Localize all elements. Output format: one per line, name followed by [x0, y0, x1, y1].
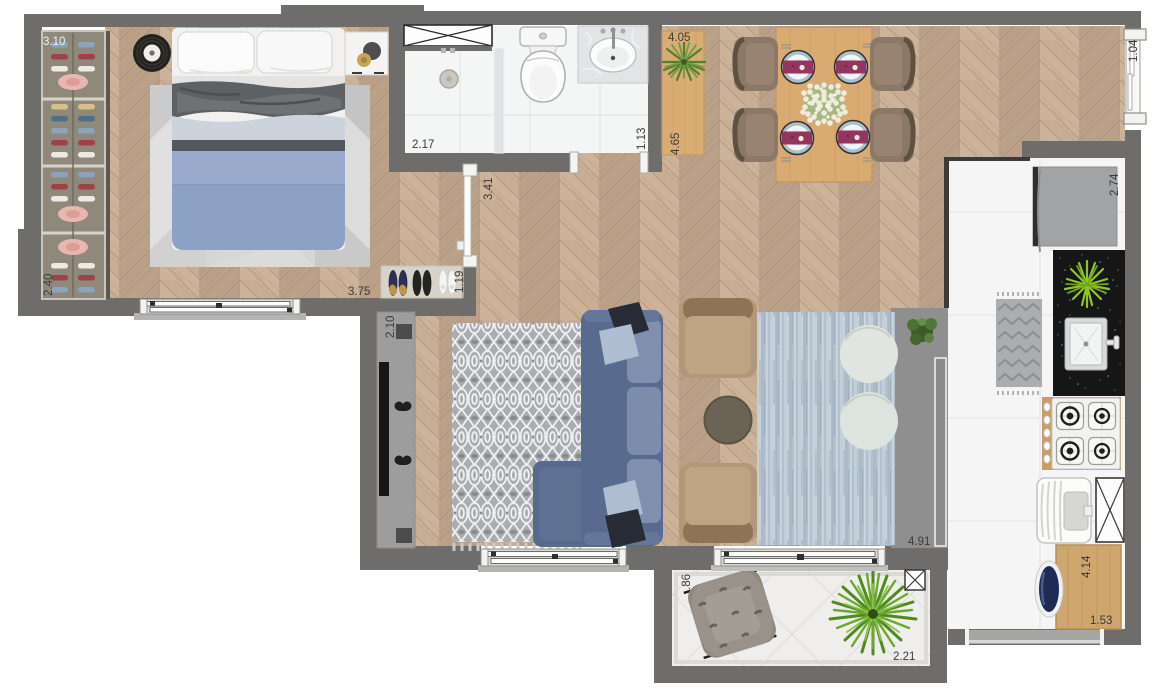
svg-text:4.14: 4.14 — [1081, 555, 1093, 578]
svg-text:2.74: 2.74 — [1109, 173, 1121, 196]
svg-text:2.21: 2.21 — [893, 651, 915, 663]
svg-text:1.04: 1.04 — [1128, 39, 1140, 62]
svg-text:1.53: 1.53 — [1090, 615, 1112, 627]
svg-text:1.13: 1.13 — [636, 128, 648, 150]
svg-text:3.10: 3.10 — [43, 36, 65, 48]
svg-text:4.65: 4.65 — [670, 133, 682, 155]
svg-text:4.91: 4.91 — [908, 536, 930, 548]
svg-text:.86: .86 — [681, 574, 693, 590]
svg-text:1.19: 1.19 — [454, 271, 466, 293]
svg-text:2.10: 2.10 — [385, 316, 397, 338]
svg-text:3.75: 3.75 — [348, 286, 370, 298]
svg-text:4.05: 4.05 — [668, 32, 690, 44]
svg-text:2.17: 2.17 — [412, 139, 434, 151]
svg-text:2.40: 2.40 — [43, 274, 55, 296]
svg-text:3.41: 3.41 — [483, 178, 495, 200]
